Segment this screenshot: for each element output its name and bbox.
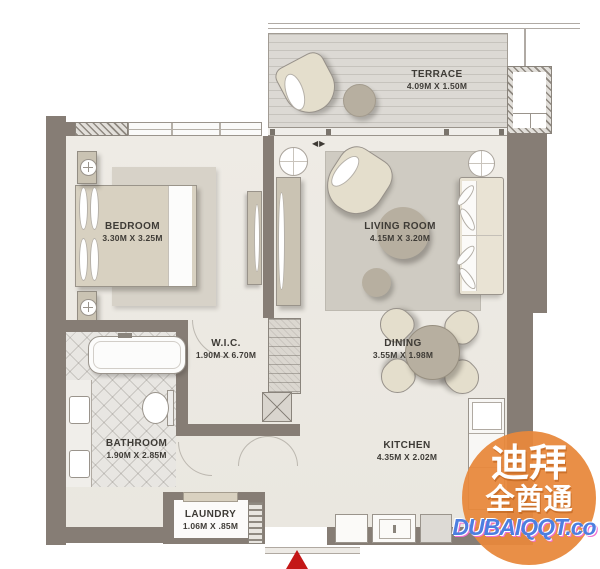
bedroom-name: BEDROOM xyxy=(75,220,190,233)
wall-bedroom-living xyxy=(263,136,274,318)
kitchen-sink-unit xyxy=(372,514,416,543)
terrace-window-sill xyxy=(268,127,507,136)
window-divider xyxy=(219,123,221,135)
sink-faucet xyxy=(393,525,396,533)
wic-name: W.I.C. xyxy=(170,337,282,350)
dining-dims: 3.55M X 1.98M xyxy=(345,350,461,361)
wall-right-upper xyxy=(507,133,547,313)
counter-divider xyxy=(469,433,504,434)
lamp-icon xyxy=(80,159,97,176)
bedroom-window xyxy=(128,122,262,136)
bathroom-vanity xyxy=(66,380,92,487)
structural-column xyxy=(507,66,552,134)
wall-wic-south xyxy=(185,424,300,436)
sill-post xyxy=(444,129,449,135)
laundry-dims: 1.06M X .85M xyxy=(163,521,258,532)
bed-pillow xyxy=(79,238,88,281)
kitchen-dims: 4.35M X 2.02M xyxy=(347,452,467,463)
pouf xyxy=(362,268,391,297)
bathroom-label: BATHROOM 1.90M X 2.85M xyxy=(80,437,193,461)
side-table-icon xyxy=(468,150,495,177)
laundry-name: LAUNDRY xyxy=(163,508,258,521)
sill-post xyxy=(326,129,331,135)
sofa-divider xyxy=(462,235,502,236)
watermark-cn-line1: 迪拜 xyxy=(462,445,596,485)
dresser-bedroom-side xyxy=(247,191,262,285)
terrace-name: TERRACE xyxy=(377,68,497,81)
bed-pillow xyxy=(90,238,99,281)
bathtub-faucet xyxy=(118,333,132,338)
entrance-arrow-icon xyxy=(286,550,308,569)
bedroom-dims: 3.30M X 3.25M xyxy=(75,233,190,244)
wic-cabinet xyxy=(262,392,292,422)
fridge xyxy=(472,402,502,430)
kitchen-cabinet xyxy=(335,514,368,543)
entrance-threshold xyxy=(265,547,360,554)
terrace-dims: 4.09M X 1.50M xyxy=(377,81,497,92)
window-mullion xyxy=(129,129,261,130)
dresser-living-side xyxy=(276,177,301,306)
watermark-latin-text: DUBAIQQT.co xyxy=(448,514,600,541)
column-line-2 xyxy=(530,114,531,128)
kitchen-name: KITCHEN xyxy=(347,439,467,452)
floor-plan-canvas: TERRACE 4.09M X 1.50M ◀▶ xyxy=(0,0,600,569)
ceiling-light-icon xyxy=(279,147,308,176)
terrace-outer-line-2 xyxy=(268,28,580,29)
wall-top-column xyxy=(75,122,128,136)
living-room-dims: 4.15M X 3.20M xyxy=(340,233,460,244)
bathroom-name: BATHROOM xyxy=(80,437,193,450)
sliding-door-arrows-icon: ◀▶ xyxy=(312,139,326,148)
laundry-label: LAUNDRY 1.06M X .85M xyxy=(163,508,258,532)
terrace-label: TERRACE 4.09M X 1.50M xyxy=(377,68,497,92)
lamp-icon xyxy=(80,299,97,316)
dresser-front xyxy=(254,204,260,272)
dining-name: DINING xyxy=(345,337,461,350)
bathtub-inner xyxy=(93,341,181,369)
sill-post xyxy=(499,129,504,135)
living-room-name: LIVING ROOM xyxy=(340,220,460,233)
wall-top-stub xyxy=(62,122,76,136)
bathroom-dims: 1.90M X 2.85M xyxy=(80,450,193,461)
sink xyxy=(69,396,90,424)
terrace-right-line xyxy=(524,28,526,68)
bedroom-label: BEDROOM 3.30M X 3.25M xyxy=(75,220,190,244)
wall-bottom-left xyxy=(46,527,163,543)
sill-post xyxy=(270,129,275,135)
laundry-door xyxy=(183,492,238,502)
wall-bedroom-bathroom xyxy=(66,320,188,332)
dresser-front xyxy=(278,192,285,290)
watermark-cn-line2: 全酋通 xyxy=(462,485,596,517)
kitchen-label: KITCHEN 4.35M X 2.02M xyxy=(347,439,467,463)
terrace-side-table xyxy=(343,84,376,117)
wic-label: W.I.C. 1.90M X 6.70M xyxy=(170,337,282,361)
living-room-label: LIVING ROOM 4.15M X 3.20M xyxy=(340,220,460,244)
dining-label: DINING 3.55M X 1.98M xyxy=(345,337,461,361)
terrace-outer-line xyxy=(268,23,580,24)
wic-dims: 1.90M X 6.70M xyxy=(170,350,282,361)
column-core xyxy=(513,72,546,128)
wall-left xyxy=(46,116,66,545)
toilet xyxy=(142,392,169,424)
watermark-logo: 迪拜 全酋通 xyxy=(462,431,596,565)
window-divider xyxy=(171,123,173,135)
